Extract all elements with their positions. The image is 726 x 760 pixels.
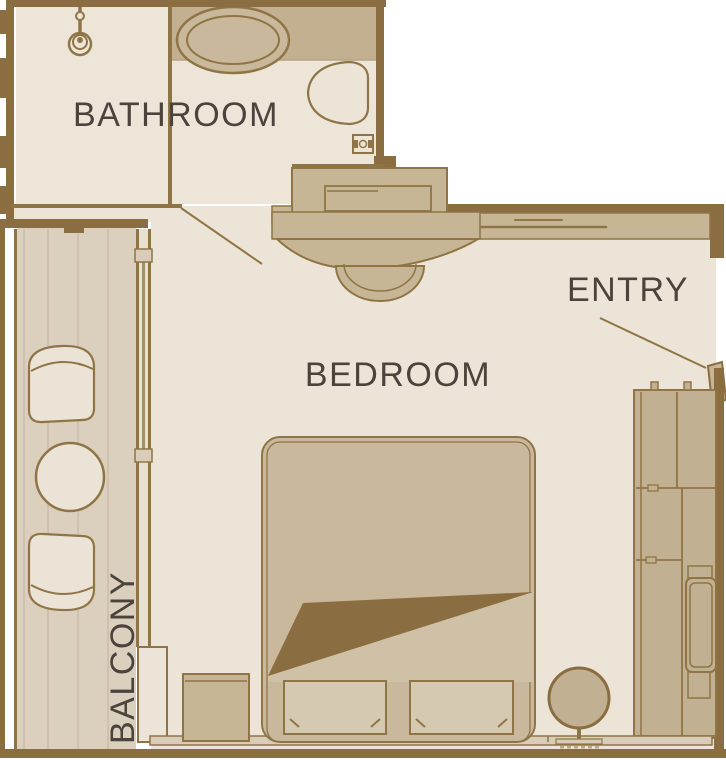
balcony-wall-notch <box>64 228 84 233</box>
mirror-base <box>556 739 602 744</box>
shower-valve <box>76 12 84 20</box>
bathroom-right-wall <box>376 0 384 162</box>
vanity-counter <box>272 212 480 239</box>
right-wall-upper <box>710 204 724 258</box>
window-glass-line <box>142 262 145 450</box>
balcony-chair-bottom <box>29 534 94 610</box>
bedroom-label: BEDROOM <box>305 356 491 394</box>
nightstand <box>183 674 249 741</box>
vanity-mirror <box>325 186 431 211</box>
balcony-label: BALCONY <box>104 571 142 744</box>
window-frame-right <box>148 229 151 647</box>
wardrobe-knob-right <box>684 382 691 390</box>
window-return-column <box>138 647 167 742</box>
balcony-chair-top <box>29 346 94 422</box>
balcony-rail-inner <box>14 229 17 750</box>
bottom-wall <box>0 749 726 758</box>
entry-label: ENTRY <box>567 271 689 309</box>
wardrobe-handle-2 <box>646 557 656 563</box>
balcony-table <box>36 443 104 511</box>
left-wall-tabs <box>0 10 7 214</box>
mirror-glass <box>549 668 609 728</box>
bathroom-left-wall <box>6 0 14 225</box>
bathroom-top-wall <box>6 0 386 7</box>
wardrobe <box>634 368 724 758</box>
balcony-top-wall <box>0 219 148 228</box>
entry-top-wall <box>444 204 718 213</box>
bathroom-bottom-wall <box>12 204 182 208</box>
bathroom-label: BATHROOM <box>73 96 279 134</box>
wardrobe-handle-1 <box>648 485 658 491</box>
floorplan: BATHROOM BEDROOM ENTRY BALCONY <box>0 0 726 760</box>
window-mullion-top <box>135 249 152 262</box>
wardrobe-body <box>634 390 716 738</box>
balcony-railing <box>0 225 5 758</box>
toilet-paper-holder <box>353 135 373 153</box>
pillow-right <box>410 681 513 734</box>
wardrobe-knob-left <box>651 382 658 390</box>
shower-head-center <box>77 37 83 43</box>
window-mullion-mid <box>135 449 152 462</box>
